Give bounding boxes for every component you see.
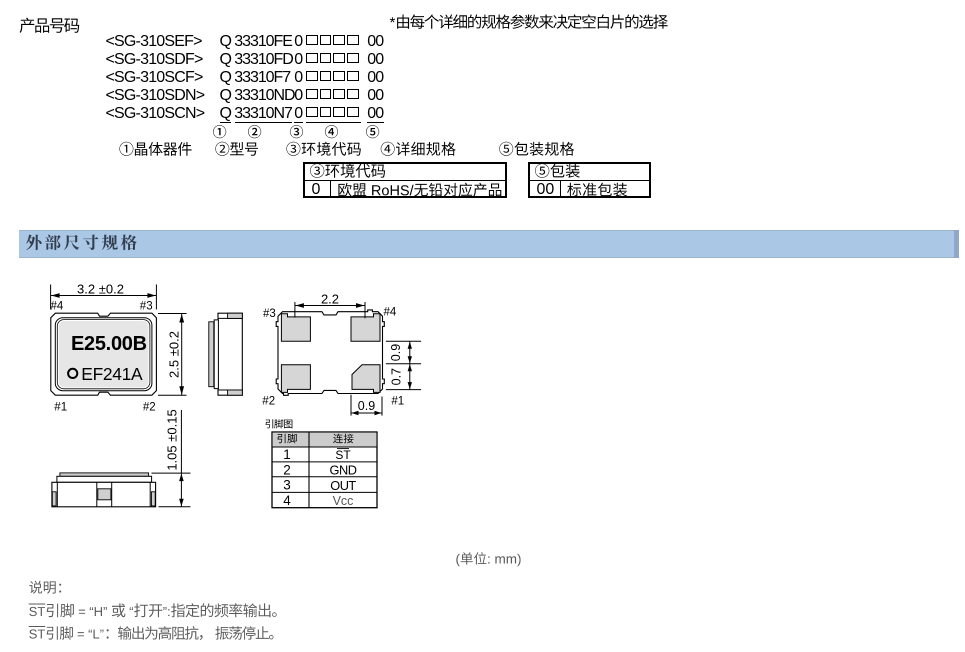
svg-text:E25.00B: E25.00B [71, 333, 147, 355]
svg-text:2.2: 2.2 [321, 291, 339, 306]
svg-text:3: 3 [283, 478, 291, 493]
svg-text:0.7: 0.7 [390, 368, 404, 385]
svg-text:3.2 ±0.2: 3.2 ±0.2 [77, 282, 124, 297]
svg-text:ST: ST [335, 448, 351, 462]
svg-text:#1: #1 [391, 396, 404, 408]
svg-text:2.5 ±0.2: 2.5 ±0.2 [167, 331, 182, 378]
svg-text:4: 4 [283, 493, 291, 508]
svg-text:#3: #3 [140, 301, 153, 313]
svg-text:0.9: 0.9 [358, 399, 375, 413]
svg-text:#4: #4 [51, 301, 64, 313]
svg-text:OUT: OUT [330, 478, 356, 493]
svg-text:#1: #1 [54, 402, 67, 414]
svg-text:#2: #2 [143, 402, 156, 414]
svg-text:#4: #4 [384, 307, 397, 319]
svg-text:2: 2 [283, 463, 291, 478]
svg-text:1: 1 [283, 447, 291, 462]
svg-text:#2: #2 [262, 396, 275, 408]
svg-text:#3: #3 [263, 308, 276, 320]
svg-text:GND: GND [330, 463, 357, 478]
svg-text:Vcc: Vcc [333, 494, 354, 508]
svg-text:1.05 ±0.15: 1.05 ±0.15 [165, 409, 180, 470]
svg-text:0.9: 0.9 [389, 344, 403, 361]
svg-text:EF241A: EF241A [81, 364, 143, 384]
